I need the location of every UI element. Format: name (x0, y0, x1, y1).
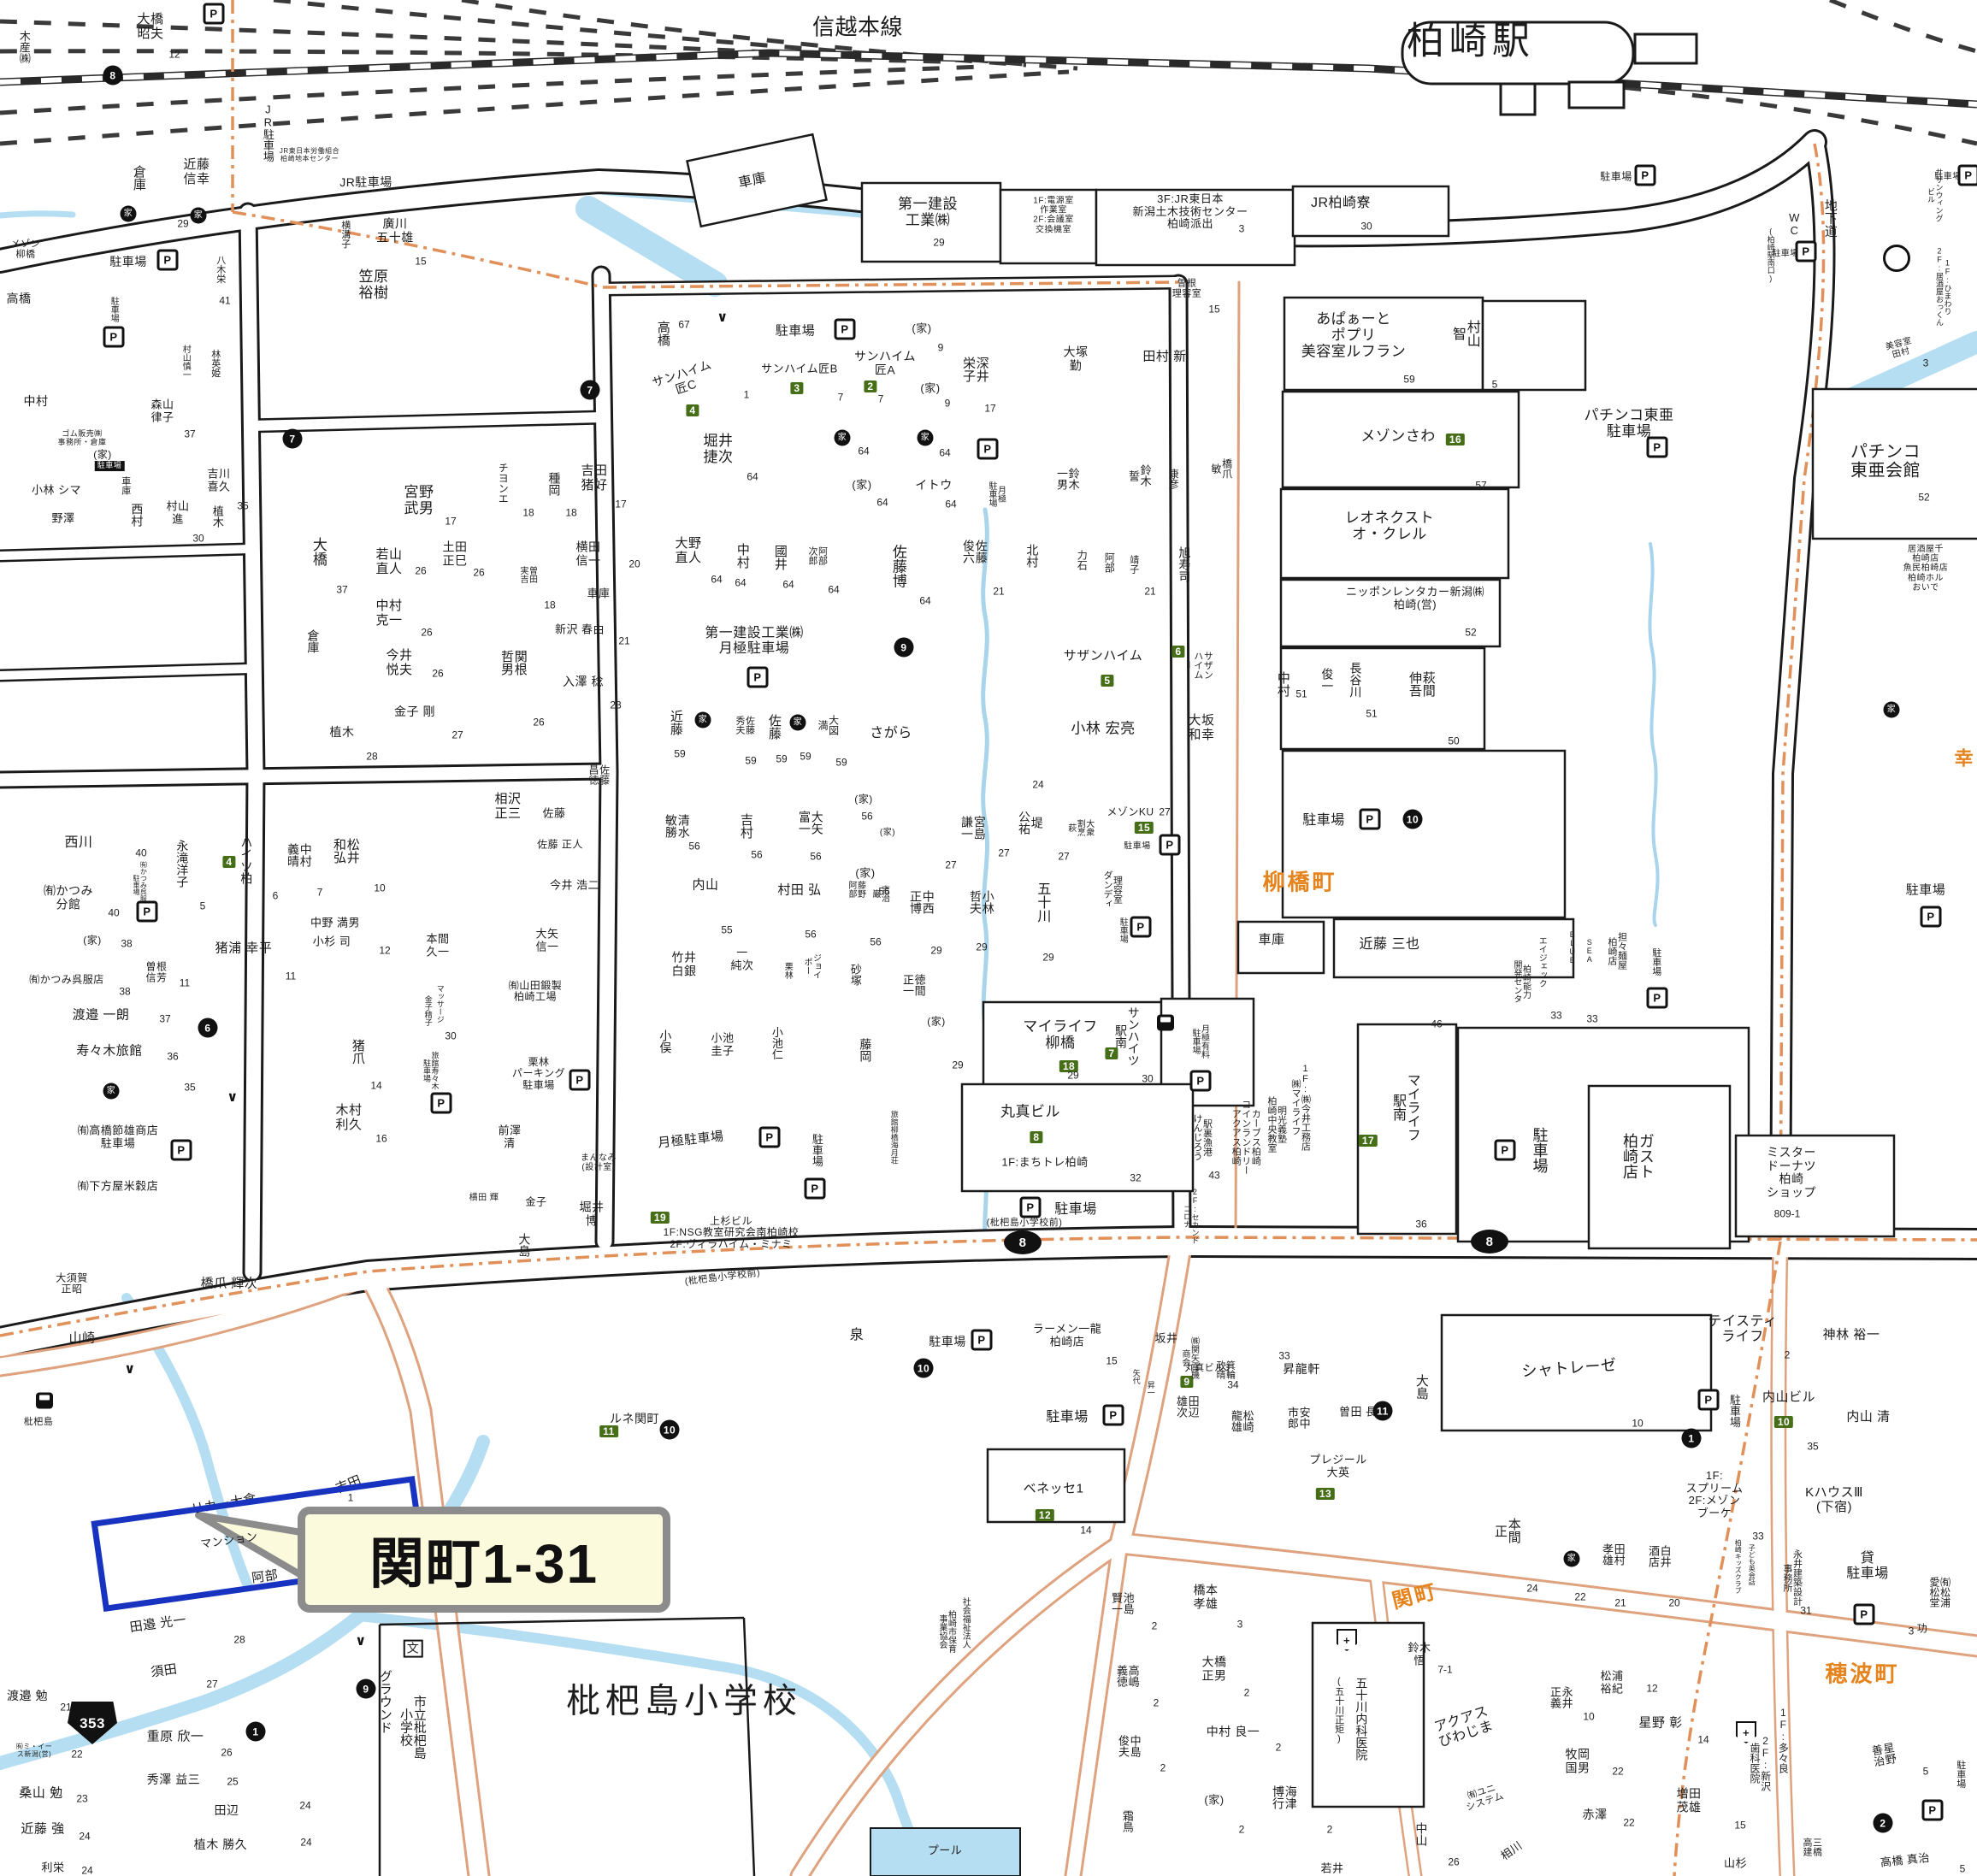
building-label: 柏崎市保育 事業協会 (937, 1610, 955, 1653)
bus-stop-number-marker: 10 (1403, 810, 1423, 829)
parking-icon: P (1698, 1389, 1720, 1411)
parking-icon: P (1635, 165, 1656, 186)
parking-icon: P (1647, 437, 1668, 458)
building-label: ㈲下方屋米穀店 (78, 1181, 159, 1194)
parcel-number: 27 (1058, 851, 1069, 862)
building-label: (家) (920, 383, 940, 396)
building-label: 箕輪 政晴 (1214, 1360, 1234, 1379)
parcel-number: 5 (1960, 1863, 1966, 1874)
school-icon: 文 (404, 1640, 423, 1658)
parcel-number: 64 (858, 445, 869, 457)
building-label: (家) (854, 793, 873, 805)
parcel-number: 5 (1492, 379, 1498, 390)
utility-icon: 家 (103, 1083, 120, 1100)
building-label: 大橋 (310, 537, 326, 566)
building-label: 高橋 真治 (1880, 1852, 1930, 1870)
building-label: 丸真ビル (1000, 1103, 1060, 1119)
building-label: ハイツ柏 (240, 836, 253, 884)
building-label: 中西 正博 (909, 890, 934, 914)
building-label: ㈲かつみ呉服店 (29, 974, 104, 985)
building-label: シャトレーゼ (1521, 1356, 1617, 1380)
parcel-number: 27 (451, 729, 463, 740)
building-label: サンハイム匠B (761, 363, 838, 376)
building-label: 長谷川 (1349, 662, 1362, 698)
parcel-number: 56 (810, 851, 821, 862)
bus-stop-number-marker: 1 (246, 1722, 266, 1742)
building-label: (五十川正矩) (1333, 1677, 1343, 1744)
building-label: 1F:多々良 (1778, 1707, 1789, 1773)
building-label: ㈲松浦 愛松堂 (1928, 1577, 1950, 1608)
building-label: ㈲高橋節雄商店 駐車場 (78, 1124, 159, 1149)
parcel-number: 29 (177, 218, 188, 229)
building-label: 駐車場 (1955, 1761, 1965, 1789)
building-label: マイライフ 柳橋 (1023, 1018, 1098, 1051)
building-label: チヨンエ (498, 463, 509, 504)
building-label: 駐車場 (776, 325, 816, 339)
place-name-label: 枇杷島小学校 (566, 1683, 802, 1721)
address-callout-text: 関町1-31 (369, 1520, 599, 1599)
parking-icon: P (157, 250, 179, 271)
utility-icon: 家 (1564, 1551, 1580, 1567)
building-label: ゴム販売㈱ 事務所・倉庫 (57, 429, 106, 446)
building-label: 宮野 武男 (404, 484, 434, 516)
building-label: 田邉 光一 (129, 1613, 187, 1636)
bus-stop-number-marker: 11 (1373, 1401, 1393, 1421)
building-label: 野澤 (51, 513, 74, 526)
parcel-number: 3 (1239, 223, 1245, 234)
building-label: 五十川内科医院 (1355, 1677, 1368, 1761)
parcel-number: 809-1 (1774, 1208, 1801, 1219)
building-label: 牧岡 国男 (1566, 1748, 1590, 1774)
building-label: 矢代 (1131, 1369, 1139, 1384)
building-label: まんなみ (設計室) (581, 1153, 617, 1172)
parcel-number: 30 (445, 1030, 456, 1041)
parcel-number: 24 (81, 1865, 92, 1876)
building-label: 西川 (64, 835, 92, 851)
building-label: JR駐車場 (339, 176, 392, 190)
building-label: 大須賀 正昭 (56, 1273, 88, 1296)
building-label: 駐車場 (929, 1336, 966, 1349)
parcel-number: 30 (1142, 1073, 1153, 1084)
parcel-number: 59 (800, 751, 811, 762)
building-label: 近藤 (669, 710, 682, 735)
building-label: 大図 満 (817, 715, 838, 735)
building-label: 森山 律子 (150, 398, 174, 423)
building-label: 内山 (692, 879, 718, 894)
block-number-badge: 2 (864, 381, 876, 392)
parcel-number: 59 (1403, 374, 1414, 385)
building-label: 駐車場 (109, 297, 118, 322)
building-label: 相沢 正三 (494, 793, 521, 822)
building-label: 貸 駐車場 (1846, 1551, 1889, 1582)
building-label: 横溝子 (339, 221, 350, 249)
building-label: 大野 直人 (675, 537, 701, 566)
building-label: グラウンド (378, 1670, 392, 1734)
building-label: 1F: スプリーム 2F:メゾン ブーケ (1685, 1470, 1743, 1519)
building-label: 一 純次 (730, 947, 753, 971)
building-label: エイジェック (1537, 936, 1546, 988)
building-label: カーブス柏崎 コインランドリー アクアス柏崎 (1230, 1100, 1260, 1175)
bus-stop-number-marker: 7 (581, 381, 600, 400)
building-label: 駐車場 (1124, 841, 1151, 851)
building-label: 植木 勝久 (194, 1838, 247, 1852)
parking-icon: P (1103, 1405, 1124, 1426)
building-label: 佐藤 秀夫 (734, 716, 753, 734)
building-label: 田辺 (215, 1804, 239, 1818)
utility-icon: 家 (790, 715, 806, 731)
building-label: 横田 信一 (576, 540, 601, 567)
building-label: (家) (927, 1016, 946, 1027)
building-label: 阿部 (1104, 552, 1115, 573)
building-label: (家) (852, 480, 871, 493)
parcel-number: 24 (300, 1837, 311, 1848)
building-label: 金子 剛 (394, 705, 435, 719)
building-label: 佐藤 (767, 714, 781, 740)
parcel-number: 21 (60, 1702, 71, 1713)
bus-stop-number-marker: 9 (894, 638, 914, 658)
parcel-number: 26 (432, 668, 443, 679)
building-label: 種岡 (548, 472, 561, 496)
hospital-icon: + (1337, 1629, 1357, 1651)
building-label: 赤澤 (1583, 1808, 1608, 1822)
building-label: 橋爪 敏 (1210, 458, 1231, 479)
parking-icon: P (137, 901, 158, 923)
parking-icon: P (1796, 241, 1817, 263)
building-label: 中島 俊夫 (1117, 1735, 1140, 1757)
parcel-number: 15 (415, 256, 426, 267)
building-label: 佐藤博 (890, 545, 906, 588)
parcel-number: 51 (1366, 708, 1377, 719)
gate-mark: ∨ (355, 1634, 367, 1649)
parking-icon: P (103, 327, 125, 348)
building-label: 大島 (1414, 1374, 1428, 1400)
building-label: 2F:セカンド コロナ (1183, 1188, 1199, 1244)
building-label: 大塚 勤 (1064, 345, 1089, 372)
parcel-number: 18 (522, 507, 534, 518)
parcel-number: 35 (1807, 1441, 1818, 1452)
building-label: 池島 賢一 (1110, 1592, 1133, 1614)
parcel-number: 27 (998, 847, 1009, 858)
building-label: 中野 満男 (310, 917, 360, 930)
block-number-badge: 4 (222, 856, 235, 868)
parcel-number: 15 (1734, 1820, 1745, 1831)
parking-icon: P (835, 319, 856, 340)
gate-mark: ∨ (124, 1362, 136, 1378)
building-label: 佐藤 俊六 (962, 540, 987, 563)
building-label: 曽根 理容室 (1172, 279, 1202, 300)
building-label: 第一建設工業㈱ 月極駐車場 (705, 626, 804, 657)
building-label: 重原 欣一 (147, 1731, 204, 1745)
block-number-badge: 7 (1105, 1047, 1118, 1059)
parking-icon: P (1360, 809, 1381, 830)
building-label: 旭寿司 (1178, 546, 1191, 582)
parking-icon: P (569, 1070, 591, 1091)
parcel-number: 2 (1239, 1824, 1245, 1835)
building-label: ミスター ドーナツ 柏崎 ショップ (1767, 1147, 1816, 1201)
building-label: 中山 (1415, 1822, 1428, 1846)
bus-stop-number-marker: 2 (1874, 1814, 1893, 1833)
parcel-number: 27 (945, 859, 956, 870)
building-label: 駐車場 (1531, 1127, 1548, 1173)
building-label: ㈲ユニ システム (1461, 1781, 1505, 1814)
bus-stop-number-marker: 8 (103, 66, 123, 86)
building-label: 駅裏漁港 けんじろう (1191, 1114, 1211, 1161)
parcel-number: 17 (984, 403, 995, 414)
parcel-number: 64 (747, 471, 758, 482)
building-label: 村山 智 (1449, 320, 1478, 347)
building-label: 社会福祉法人 (960, 1597, 970, 1649)
building-label: 白井 酒店 (1647, 1545, 1670, 1567)
parcel-number: 52 (1918, 492, 1929, 503)
building-label: 今井 悦夫 (386, 649, 412, 678)
building-label: 大衆 割烹 萩 (1065, 819, 1093, 836)
parcel-number: 29 (976, 941, 987, 953)
building-label: 林英姫 (210, 350, 220, 378)
block-number-badge: 3 (790, 382, 803, 394)
building-label: 倉庫 (307, 629, 320, 653)
building-label: 金子 (525, 1196, 546, 1207)
parcel-number: 26 (473, 567, 484, 578)
building-label: 栗林 パーキング 駐車場 (512, 1057, 565, 1091)
building-label: 小池仁 (770, 1027, 782, 1060)
parcel-number: 64 (919, 595, 930, 606)
building-label: 佐藤 正人 (537, 839, 583, 850)
parcel-number: 40 (108, 907, 119, 918)
parcel-number: 37 (336, 584, 347, 595)
block-number-badge: 8 (1030, 1131, 1042, 1143)
building-label: 木産㈱ (18, 31, 30, 64)
parcel-number: 22 (71, 1749, 82, 1760)
building-label: 小池 圭子 (711, 1032, 734, 1057)
utility-icon: 家 (121, 206, 137, 222)
building-label: (家) (83, 935, 102, 946)
parcel-number: 29 (952, 1059, 963, 1071)
building-label: ニッポンレンタカー新潟㈱ 柏崎(営) (1346, 586, 1484, 611)
parcel-number: 52 (1465, 627, 1476, 638)
block-number-badge: 11 (599, 1425, 618, 1437)
building-label: WC (1788, 211, 1800, 237)
block-number-badge: 19 (651, 1212, 670, 1224)
parking-icon: P (747, 667, 769, 688)
building-label: 柏崎能力 開発センタ (1512, 960, 1530, 1003)
building-label: 横田 輝 (469, 1193, 499, 1202)
building-label: 1F:㈱今井工務店 ㈱マイライフ (1289, 1064, 1309, 1151)
building-label: 柏崎キッズクラブ (1734, 1539, 1741, 1594)
building-label: (家) (93, 449, 112, 460)
building-label: JR東日本労働組合 柏崎地本センター (280, 148, 339, 163)
parcel-number: 24 (79, 1831, 90, 1842)
parcel-number: 35 (237, 500, 248, 511)
town-name-label: 幸 (1954, 749, 1975, 770)
building-label: 第一建設 工業㈱ (898, 196, 958, 228)
parcel-number: 57 (1475, 480, 1486, 491)
building-label: 金子精子 (423, 995, 431, 1026)
building-label: 倉庫 (132, 165, 145, 191)
building-label: イトウ (915, 479, 953, 493)
building-label: 吉村 (739, 813, 752, 839)
building-label: 利栄 (41, 1862, 64, 1875)
building-label: 月極駐車場 (658, 1130, 725, 1152)
parking-icon: P (1495, 1140, 1516, 1161)
parcel-number: 33 (1586, 1013, 1597, 1024)
building-label: 車庫 (587, 588, 610, 601)
parcel-number: 24 (1032, 779, 1043, 790)
building-label: (枇杷島小学校前) (684, 1267, 761, 1287)
building-label: 萩間 伸吾 (1408, 671, 1435, 697)
parking-icon: P (1160, 835, 1181, 856)
parking-icon: P (759, 1127, 781, 1148)
parcel-number: 2 (1154, 1697, 1160, 1708)
building-label: 大橋 昭夫 (137, 13, 163, 42)
parcel-number: 5 (200, 900, 206, 911)
building-label: 若山 直人 (375, 548, 402, 577)
building-label: 駐車場 (1600, 171, 1632, 182)
parcel-number: 7 (838, 392, 844, 403)
building-label: 担々麺屋 柏崎店 (1606, 932, 1626, 970)
parking-icon: P (971, 1330, 993, 1351)
parcel-number: 25 (227, 1776, 238, 1787)
building-label: 渡邉 勉 (7, 1690, 48, 1703)
building-label: 西村 (131, 503, 144, 527)
building-label: 地下道 (1823, 199, 1837, 238)
parcel-number: 59 (776, 753, 787, 764)
parking-icon: P (431, 1093, 452, 1114)
parcel-number: 2 (1276, 1742, 1282, 1753)
parcel-number: 37 (184, 428, 195, 440)
utility-icon: 家 (1884, 702, 1900, 718)
parcel-number: 7 (317, 887, 323, 898)
parking-icon: P (1922, 1800, 1944, 1821)
building-label: 藤野 阿部 (847, 881, 865, 898)
building-label: 高橋 (7, 292, 32, 306)
building-label: 若井 (1320, 1863, 1343, 1876)
block-number-badge: 13 (1316, 1488, 1335, 1500)
building-label: 安中 市郎 (1286, 1407, 1309, 1429)
parcel-number: 18 (544, 599, 555, 611)
building-label: 土田 正巳 (443, 540, 468, 567)
building-label: BLUE (1567, 930, 1575, 965)
parcel-number: 12 (1646, 1683, 1657, 1694)
building-label: 中村 義晴 (286, 843, 311, 867)
parcel-number: 31 (1800, 1605, 1811, 1616)
building-label: ジョイ ポー (802, 953, 820, 979)
building-label: 松浦 裕紀 (1600, 1670, 1623, 1695)
building-label: 植木 (330, 726, 355, 740)
building-label: 鈴木 悟 (1408, 1642, 1431, 1667)
building-label: (家) (912, 323, 931, 336)
building-label: 笠原 裕樹 (359, 268, 389, 301)
parking-icon: P (805, 1178, 826, 1200)
building-label: 小杉 司 (313, 936, 351, 949)
parcel-number: 40 (135, 847, 146, 858)
parcel-number: 10 (1583, 1711, 1594, 1722)
building-label: 廣川 五十雄 (376, 217, 414, 244)
building-label: 駐車場 (1302, 813, 1345, 829)
building-label: 杉山 (1722, 1855, 1745, 1869)
building-label: 中村 克一 (375, 599, 402, 628)
building-label: マイライフ 駅南 (1390, 1073, 1419, 1142)
building-label: 霜鳥 (1121, 1810, 1133, 1832)
gate-mark: ∨ (227, 1090, 239, 1106)
building-label: 信越本線 (812, 15, 903, 39)
parcel-number: 17 (615, 498, 626, 510)
parcel-number: 64 (828, 584, 839, 595)
parcel-number: 7 (878, 393, 884, 404)
block-number-badge: 15 (1135, 822, 1154, 834)
building-label: 清水 敏勝 (664, 814, 689, 838)
block-number-badge: 10 (1774, 1416, 1793, 1428)
building-label: 昇龍軒 (1283, 1363, 1320, 1377)
building-label: 美容室 田村 (1885, 336, 1915, 362)
building-label: ㈲山田鍛製 柏崎工場 (509, 981, 563, 1004)
building-label: 三橋 高建 (1801, 1838, 1821, 1856)
bus-stop-number-marker: 10 (914, 1359, 934, 1378)
building-label: 栗林 (782, 962, 792, 979)
building-label: 村山慎一 (180, 345, 190, 379)
building-label: 堤 公祐 (1018, 811, 1042, 835)
parcel-number: 15 (1106, 1355, 1117, 1366)
building-label: 砂塚 (849, 964, 861, 986)
parcel-number: 50 (1448, 735, 1459, 746)
parcel-number: 28 (233, 1634, 245, 1645)
building-label: 力石 (1077, 550, 1088, 570)
utility-icon: 家 (835, 430, 851, 446)
building-label: SEA (1585, 938, 1592, 964)
parcel-number: 26 (1448, 1856, 1459, 1867)
building-label: 曽根 信芳 (145, 962, 167, 985)
building-label: 須田 (150, 1663, 178, 1681)
building-label: 前澤 清 (498, 1124, 521, 1149)
parcel-number: 30 (1360, 221, 1372, 232)
map-labels-layer: 信越本線柏崎駅車庫第一建設 工業㈱291F:電源室 作業室 2F:会議室 交換機… (0, 0, 1977, 1876)
town-name-label: 穂波町 (1825, 1661, 1899, 1686)
building-label: 1F:ひまわり 2F:居酒屋おっくん (1935, 247, 1951, 327)
building-label: 佐藤 (542, 808, 565, 821)
parcel-number: 33 (1752, 1531, 1763, 1542)
parcel-number: 9 (938, 342, 944, 353)
bus-stop-number-marker: 10 (660, 1420, 680, 1440)
parcel-number: 16 (375, 1133, 387, 1144)
building-label: 増田 茂雄 (1677, 1787, 1702, 1814)
building-label: 駐車場 (1728, 1395, 1740, 1428)
building-label: 中村 (24, 395, 49, 409)
building-label: 車庫 (737, 171, 768, 192)
parcel-number: 36 (167, 1051, 178, 1062)
parking-icon: P (204, 3, 225, 25)
building-label: 大橋 正男 (1202, 1655, 1227, 1682)
building-label: 永滝洋子 (176, 840, 189, 888)
building-label: JR駐車場 (262, 103, 274, 162)
building-label: 植木 (211, 505, 223, 528)
parcel-number: 59 (674, 748, 685, 759)
parcel-number: 36 (1415, 1218, 1426, 1230)
building-label: 松井 和弘 (332, 838, 359, 864)
building-label: 上杉ビル 1F:NSG教室研究会南柏崎校 2F:ヴィラハイム・ミナミ (664, 1216, 800, 1250)
parcel-number: 1 (744, 389, 750, 400)
parcel-number: 21 (993, 586, 1004, 597)
building-label: 高橋 (656, 321, 670, 346)
parcel-number: 59 (835, 757, 847, 768)
building-label: テイスティ ライフ (1708, 1314, 1777, 1345)
building-label: 昇一 (1146, 1381, 1154, 1396)
building-label: 駐車場 (109, 256, 147, 269)
building-label: 堀井 博 (580, 1201, 605, 1227)
building-label: 居酒屋千 柏崎店 魚民柏崎店 柏崎ホル おいで (1903, 545, 1949, 593)
parking-icon: P (1020, 1197, 1042, 1218)
parcel-number: 28 (366, 751, 377, 762)
building-label: アクアス びわじま (1432, 1704, 1496, 1750)
building-label: 駐車場 (1906, 884, 1946, 899)
